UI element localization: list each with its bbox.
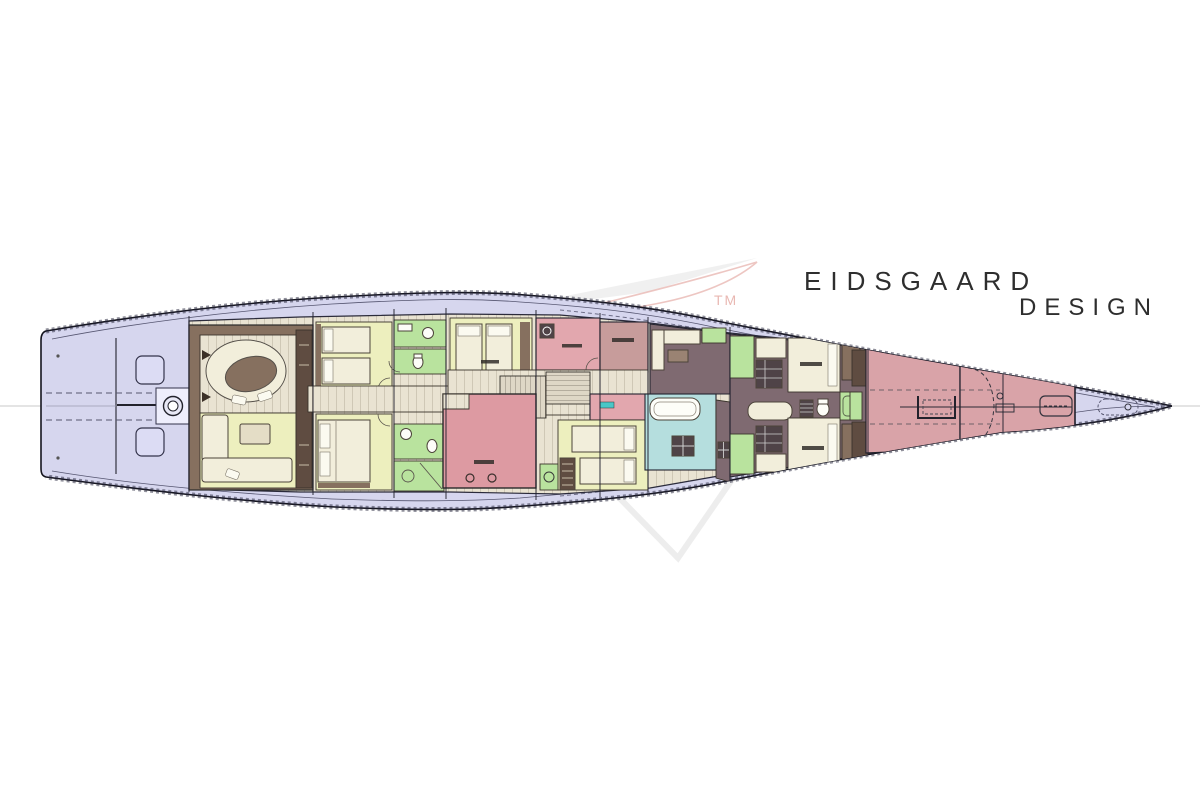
staircase-icon <box>546 372 590 404</box>
crew-mess-dining <box>650 324 730 394</box>
bathtub-icon <box>650 398 700 420</box>
locker-icon <box>800 400 813 417</box>
room-label-mark <box>474 460 494 464</box>
sink-icon <box>401 429 412 440</box>
shower-floor <box>394 461 444 491</box>
bunk-unit-icon <box>756 360 782 388</box>
guest-cabin-twin <box>316 322 392 390</box>
deck-fitting-dot <box>56 354 59 357</box>
utility-nook <box>540 464 558 490</box>
bunk-unit-icon <box>756 426 782 452</box>
sofa-section <box>202 415 228 461</box>
engine-room-landing <box>443 394 469 409</box>
bathroom-teal <box>645 394 716 470</box>
trademark-symbol: TM <box>714 292 738 308</box>
toilet-icon <box>427 440 437 453</box>
guest-bathroom-fwd-top <box>389 320 446 374</box>
pillow <box>624 460 634 482</box>
capstan-winch-icon <box>156 388 192 424</box>
room-label-mark <box>802 446 824 450</box>
pillow <box>488 326 510 336</box>
pillow <box>458 326 480 336</box>
guest-cabin-double <box>316 414 392 490</box>
technical-room-small <box>590 394 646 420</box>
counter <box>398 324 412 331</box>
brand-logotype: EIDSGAARD DESIGN <box>804 266 1159 321</box>
laundry-room <box>536 318 600 370</box>
pillow <box>828 344 837 386</box>
interior-accommodation <box>189 308 1075 500</box>
crew-bathroom <box>730 336 754 378</box>
guest-bathroom-fwd-bottom <box>394 424 446 491</box>
table-icon <box>668 350 688 362</box>
owner-suite <box>189 325 313 490</box>
washer-icon <box>540 324 554 338</box>
pillow <box>320 452 330 476</box>
pillow <box>320 424 330 448</box>
brand-name-line1: EIDSGAARD <box>804 266 1038 296</box>
equipment-label <box>600 402 614 408</box>
pillow <box>624 428 634 450</box>
crew-berth-icon <box>756 338 786 358</box>
crew-berth-icon <box>756 454 786 472</box>
room-label-mark <box>800 362 822 366</box>
forepeak <box>850 347 1075 458</box>
coffee-table-icon <box>240 424 270 444</box>
sink-icon <box>423 328 434 339</box>
toilet-tank <box>414 354 422 358</box>
yacht-ga-page: TM EIDSGAARD DESIGN <box>0 0 1200 800</box>
room-label-mark <box>562 344 582 348</box>
sofa-section <box>202 458 292 482</box>
pantry-locker <box>702 328 726 343</box>
pillow <box>324 360 333 382</box>
room-label-mark <box>612 338 634 342</box>
deck-hatch-aft-port <box>136 356 164 384</box>
headboard-strip <box>316 324 321 388</box>
technical-room-top <box>600 322 648 372</box>
technical-floor <box>590 394 646 420</box>
galley <box>716 400 730 482</box>
windlass-dot-icon <box>1125 404 1131 410</box>
deck-fitting-dot <box>56 456 59 459</box>
technical-floor <box>600 322 648 372</box>
yacht-interior-plan: TM EIDSGAARD DESIGN <box>0 0 1200 800</box>
bed-footboard <box>318 483 370 488</box>
bathroom-floor <box>394 424 446 459</box>
deck-hatch-aft-starboard <box>136 428 164 456</box>
settee-icon <box>652 330 664 370</box>
pillow <box>828 424 837 464</box>
room-label-mark <box>481 360 499 364</box>
pillow <box>324 329 333 351</box>
engine-room <box>443 394 536 488</box>
toilet-tank <box>818 399 828 404</box>
brand-name-line2: DESIGN <box>1019 294 1159 321</box>
winch-inner <box>168 401 178 411</box>
galley-floor <box>716 400 730 482</box>
fwd-locker <box>850 392 862 420</box>
crew-mess-table-icon <box>748 402 792 420</box>
crew-quarters <box>730 334 868 477</box>
crew-bathroom <box>730 434 754 474</box>
